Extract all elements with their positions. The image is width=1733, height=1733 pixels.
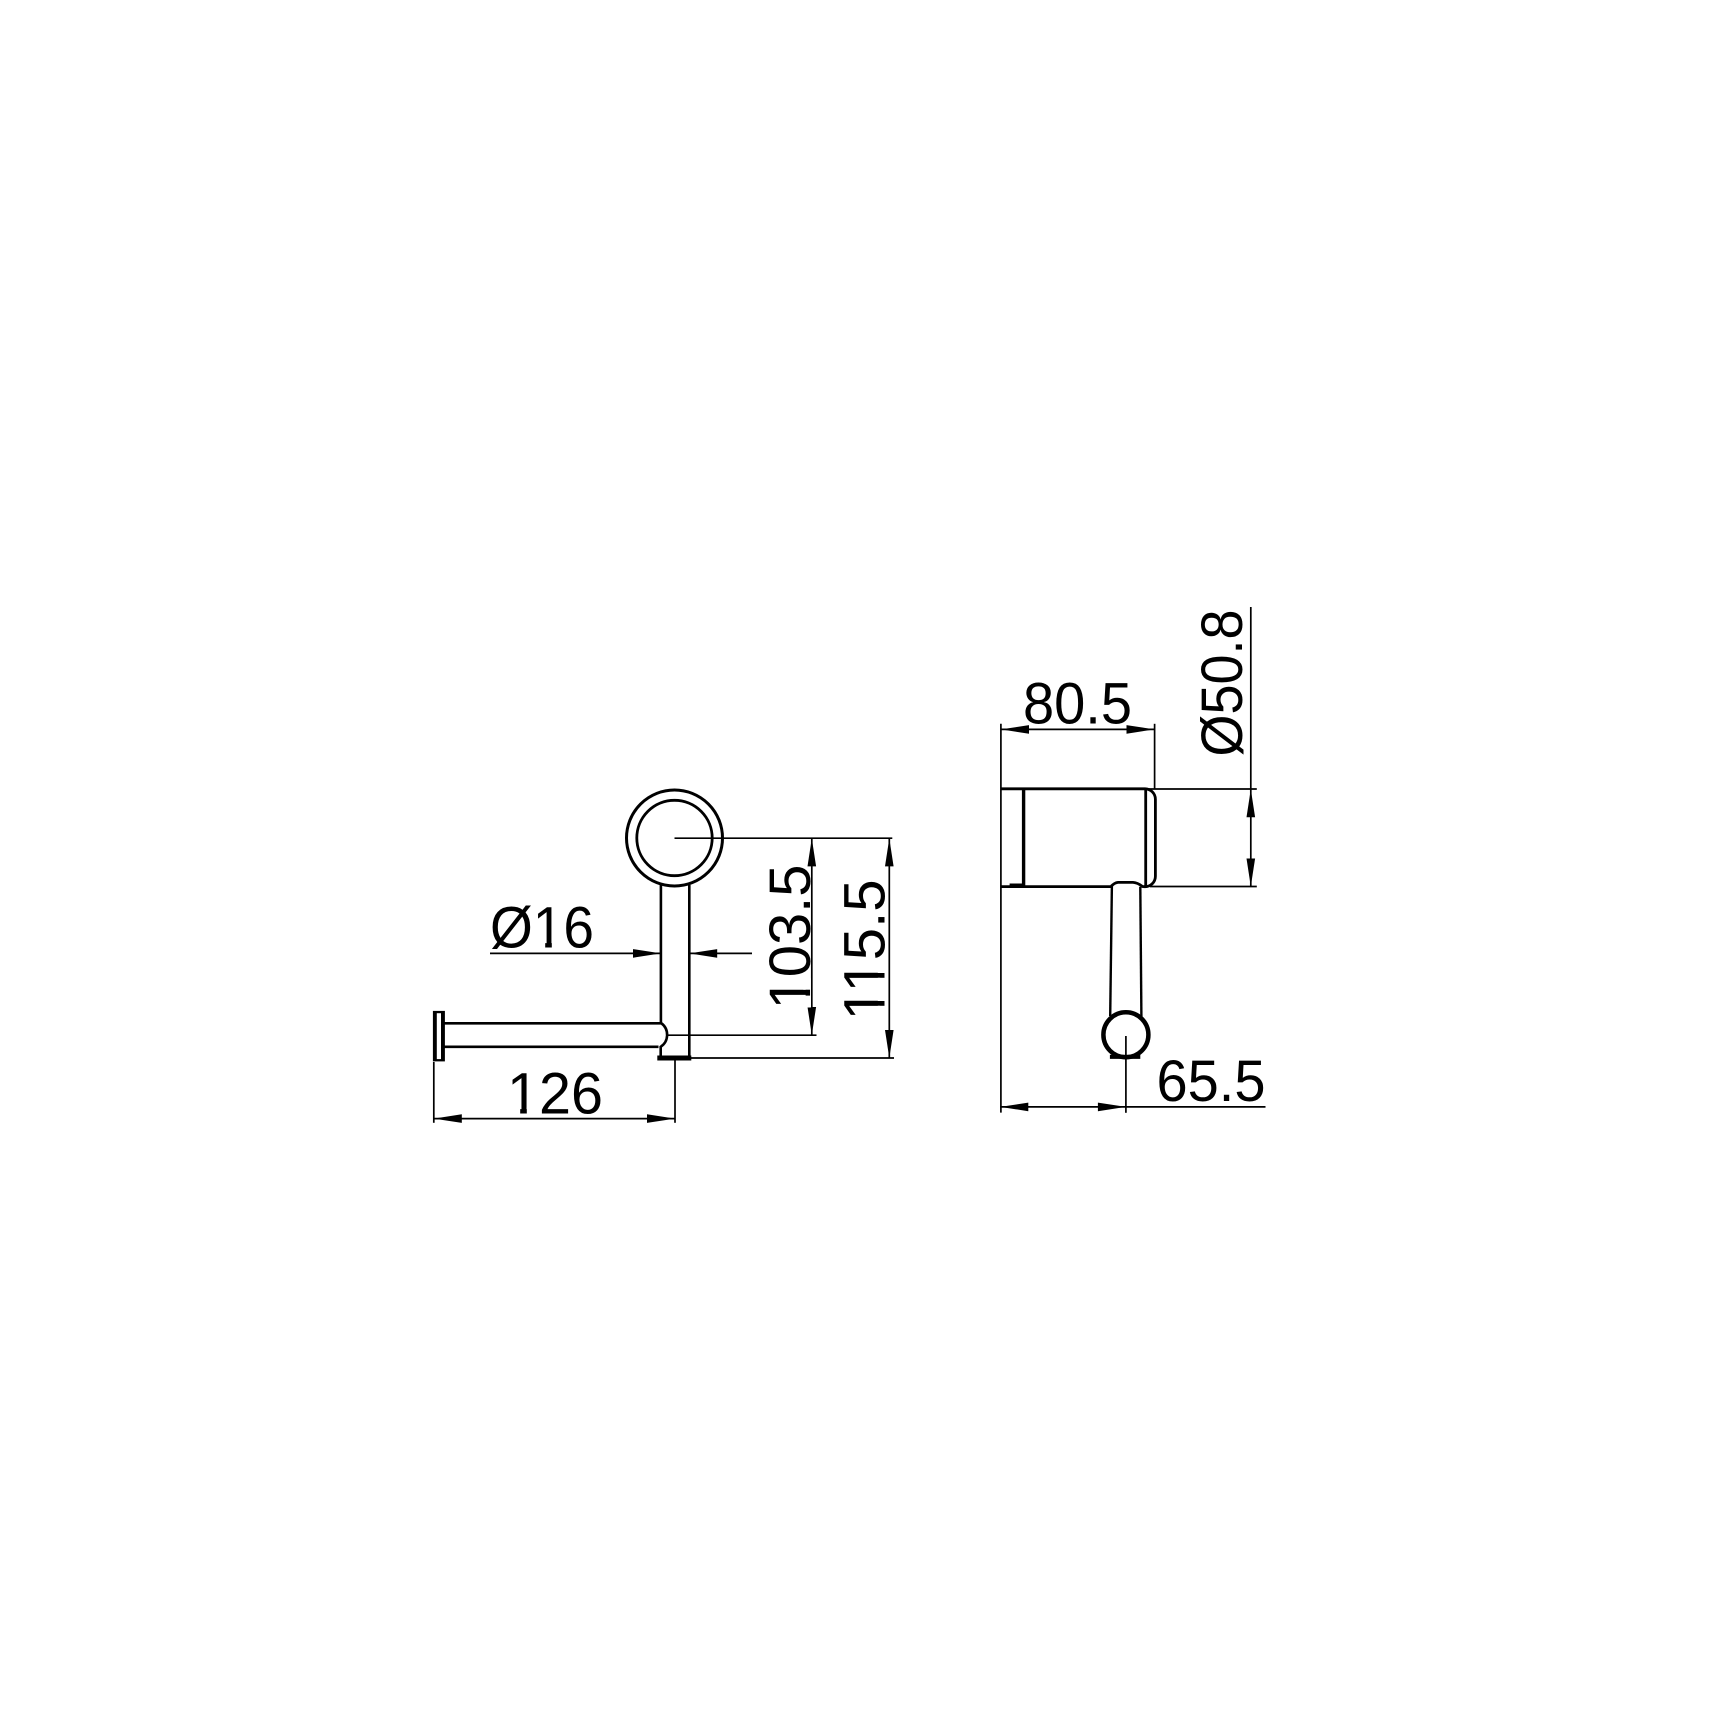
svg-text:65.5: 65.5 xyxy=(1157,1049,1266,1114)
svg-text:Ø50.8: Ø50.8 xyxy=(1190,610,1255,757)
svg-text:115.5: 115.5 xyxy=(833,880,898,1021)
svg-text:103.5: 103.5 xyxy=(758,865,823,1010)
svg-text:126: 126 xyxy=(507,1062,603,1127)
svg-text:Ø16: Ø16 xyxy=(490,895,594,960)
svg-text:80.5: 80.5 xyxy=(1023,671,1132,736)
